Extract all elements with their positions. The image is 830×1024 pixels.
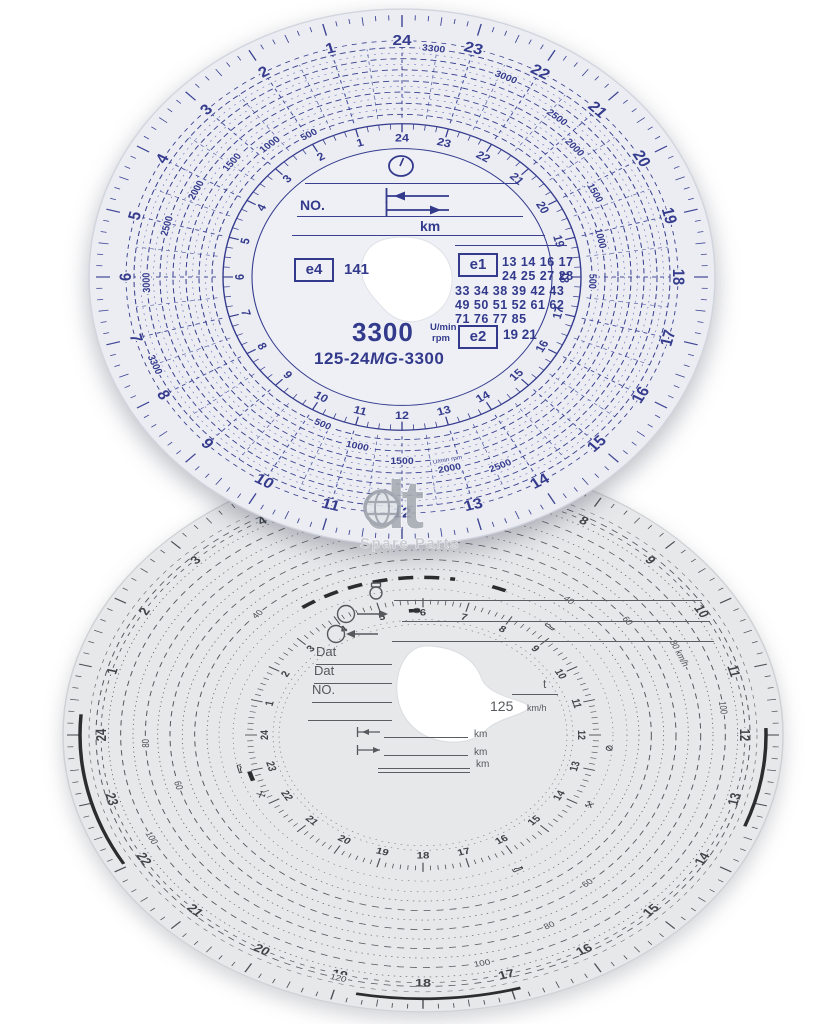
clock-icon	[384, 154, 418, 178]
model-mg: MG	[370, 349, 398, 368]
tachograph-discs-product-photo: 1234567891011121314151617181920212223244…	[0, 0, 830, 1024]
entry-line	[292, 235, 545, 236]
e2-approval-value: 19 21	[503, 327, 537, 342]
e1-approval-row: 24 25 27 28	[502, 269, 574, 283]
e4-approval-mark: e4	[294, 258, 334, 282]
entry-line	[455, 245, 567, 246]
model-prefix: 125-24	[314, 349, 370, 368]
rpm-max-value: 3300	[352, 317, 414, 348]
entry-line	[305, 183, 517, 184]
spare-parts-text: Spare Parts	[360, 535, 460, 552]
e1-approval-row: 49 50 51 52 61 62	[455, 298, 564, 312]
globe-icon	[365, 491, 399, 525]
disc-model-number: 125-24MG-3300	[314, 349, 444, 369]
e2-approval-mark: e2	[458, 325, 498, 349]
e4-approval-value: 141	[344, 261, 369, 278]
dt-spare-parts-watermark: dt Spare Parts	[330, 452, 490, 552]
e1-approval-row: 13 14 16 17	[502, 255, 574, 269]
rpm-unit-bottom: rpm	[432, 333, 450, 344]
number-label: NO.	[300, 197, 325, 213]
e1-approval-row: 71 76 77 85	[455, 312, 527, 326]
e1-approval-mark: e1	[458, 253, 498, 277]
rpm-unit-top: U/min	[430, 322, 456, 333]
e1-approval-row: 33 34 38 39 42 43	[455, 284, 564, 298]
arrow-right-icon	[385, 202, 455, 218]
km-label: km	[420, 218, 440, 234]
model-suffix: -3300	[398, 349, 444, 368]
